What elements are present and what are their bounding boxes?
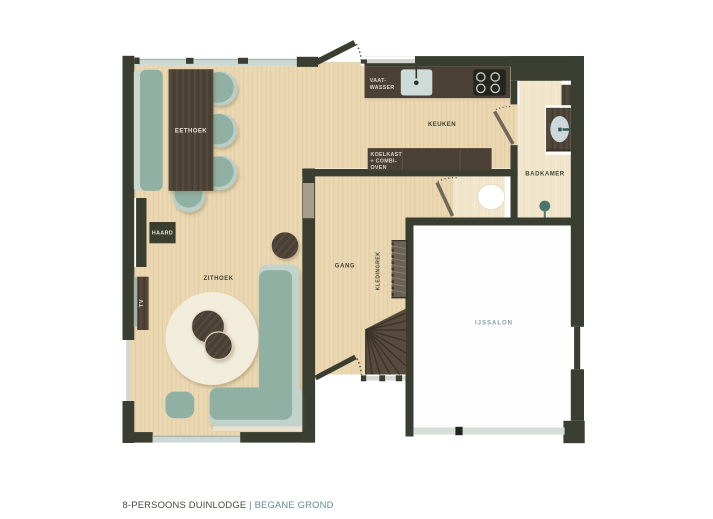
svg-text:KLEDINGREK: KLEDINGREK [376, 252, 382, 291]
svg-text:EETHOEK: EETHOEK [175, 128, 207, 134]
svg-text:ZITHOEK: ZITHOEK [204, 276, 234, 282]
svg-text:TV: TV [139, 299, 145, 307]
svg-text:VAAT-: VAAT- [370, 78, 387, 84]
svg-text:OVEN: OVEN [371, 165, 387, 171]
svg-text:KEUKEN: KEUKEN [428, 122, 456, 128]
svg-text:HAARD: HAARD [152, 231, 173, 237]
svg-text:GANG: GANG [335, 263, 355, 269]
svg-text:BADKAMER: BADKAMER [525, 172, 565, 178]
svg-text:IJSSALON: IJSSALON [475, 321, 513, 327]
svg-text:WASSER: WASSER [370, 85, 395, 91]
svg-text:+ COMBI-: + COMBI- [371, 158, 397, 164]
svg-text:KOELKAST: KOELKAST [371, 152, 403, 158]
svg-text:8-PERSOONS DUINLODGE | BEGANE: 8-PERSOONS DUINLODGE | BEGANE GROND [123, 499, 334, 510]
